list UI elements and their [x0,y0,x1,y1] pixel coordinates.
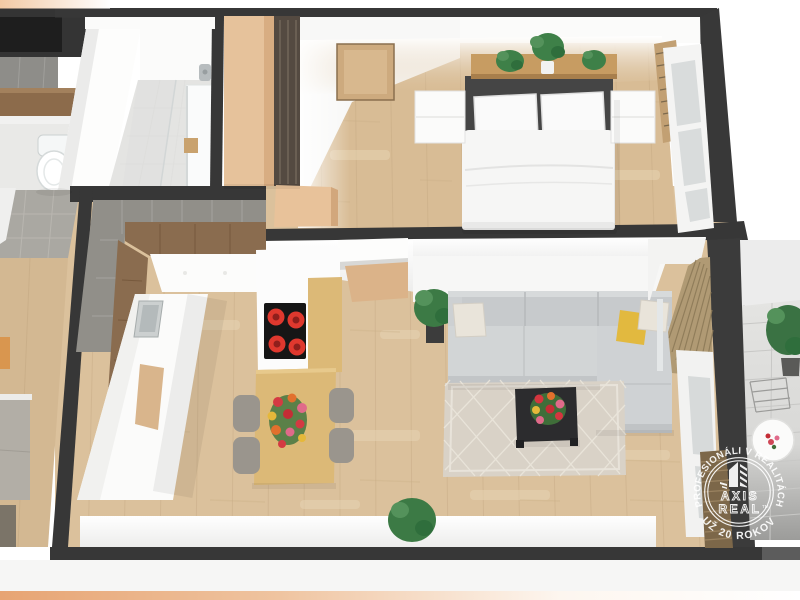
svg-text:REAL: REAL [718,502,761,516]
svg-text:TM: TM [762,504,769,509]
svg-text:AXIS: AXIS [721,489,759,503]
